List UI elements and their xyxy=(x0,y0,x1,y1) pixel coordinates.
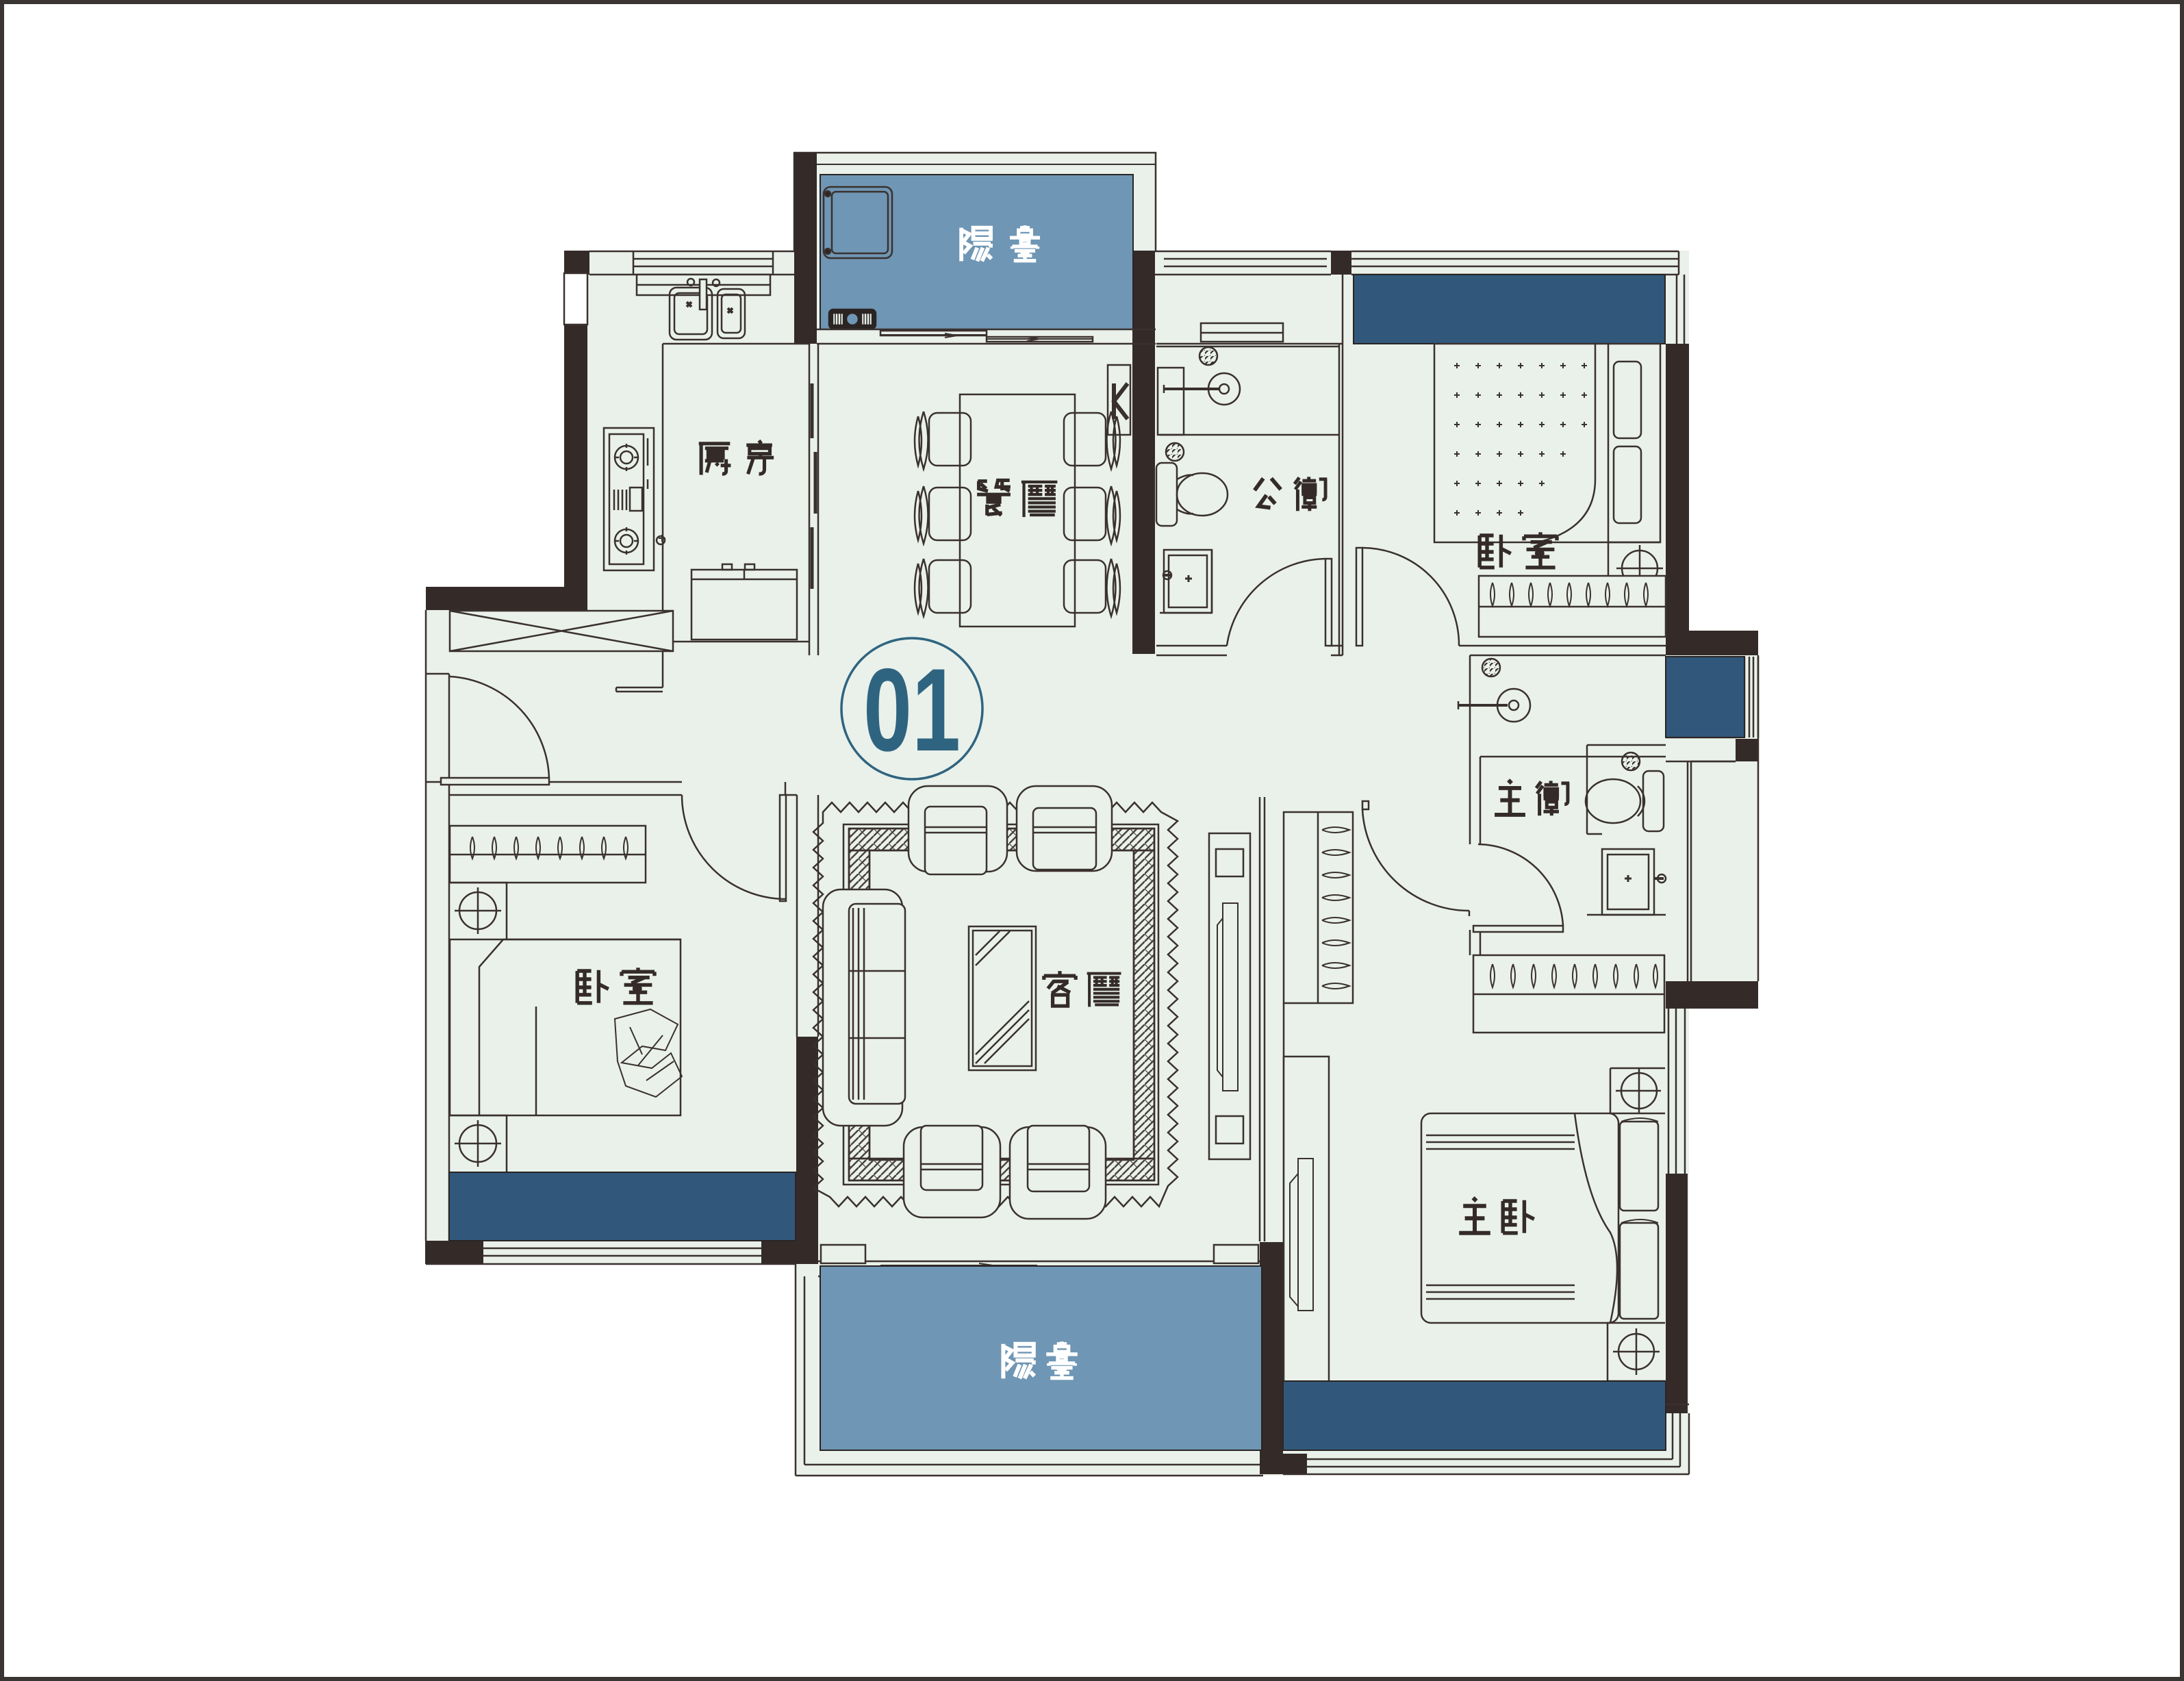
svg-text:01: 01 xyxy=(863,644,961,776)
